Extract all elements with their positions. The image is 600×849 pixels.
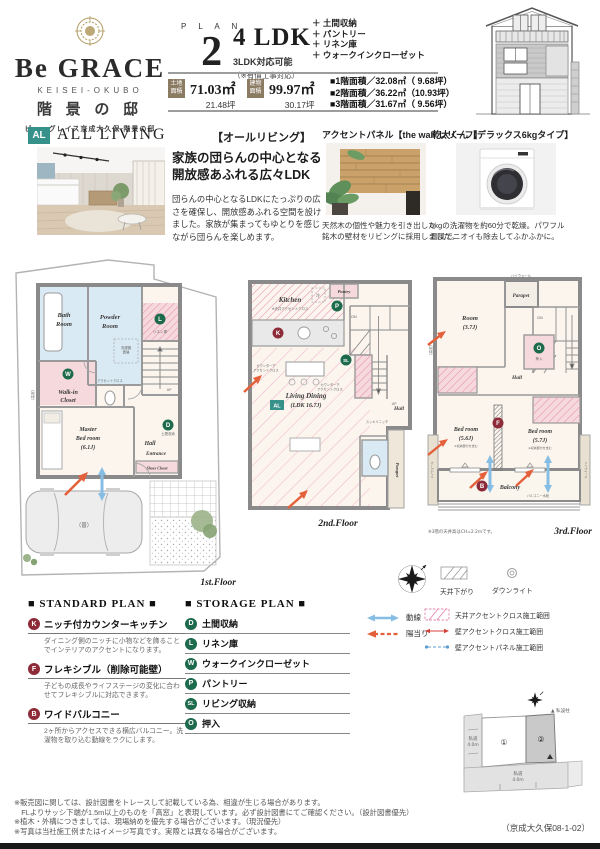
closet-room-hatch	[438, 367, 477, 393]
floor3-note: ※3階の天井高はCH=2.2mです。	[428, 528, 495, 535]
storage-plan-title: ■ STORAGE PLAN ■	[185, 598, 350, 610]
all-living-headline: 家族の団らんの中心となる 開放感あふれる広々LDK	[172, 150, 322, 184]
dryer-photo	[456, 143, 556, 215]
al-badge: AL	[28, 127, 50, 144]
ldk-sub: 3LDK対応可能	[233, 55, 311, 68]
road-bottom-label-2: 4.0m	[512, 777, 523, 783]
room-label-2: (3.7J)	[463, 324, 478, 331]
counter-note-a1: カウンター下	[256, 363, 276, 368]
standard-item-desc: ダイニング側のニッチに小物などを飾ることでインテリアのアクセントになります。	[44, 637, 186, 655]
linen-legend-badge: L	[185, 638, 197, 650]
accent-note: アクセントクロス	[97, 378, 122, 383]
sofa	[290, 438, 320, 451]
hall-label-2f: Hall	[393, 406, 405, 412]
road-left-label-1: 私道	[469, 735, 478, 742]
disclaimer-line3: ※植木・外構につきましては、現場納めを優先する場合がございます。（現況優先）	[14, 817, 444, 827]
sl-badge-letter: SL	[343, 358, 349, 363]
standard-plan-item: Kニッチ付カウンターキッチン ダイニング側のニッチに小物などを飾ることでインテリ…	[28, 617, 186, 655]
legend-ceiling-drop: 天井下がり	[440, 566, 474, 596]
elevation-drawing	[468, 2, 596, 122]
powder-label-2: Room	[101, 323, 118, 330]
island-counter	[286, 362, 324, 376]
kitchen-note: ※天井アクセントクロス	[272, 306, 309, 311]
sun-arrow-icon	[366, 629, 400, 639]
brand-sub: KEISEI-OKUBO	[10, 86, 170, 95]
washer-label-2: 置場	[123, 350, 130, 355]
flexible-wall	[494, 405, 502, 470]
storage-item: Pパントリー	[185, 674, 350, 694]
doma-legend-badge: D	[185, 618, 197, 630]
up-label-1f: UP	[167, 388, 173, 392]
building-tsubo: 30.17坪	[269, 99, 315, 111]
road-stub	[568, 761, 582, 787]
living-room-photo	[37, 147, 165, 235]
legend-downlight: ダウンライト	[492, 566, 533, 595]
footer-code: （京成大久保08-1-02）	[450, 822, 590, 834]
wic-badge-letter: W	[65, 372, 71, 378]
disclaimer-line2: FLよりサッシ下端が1.5m以上のものを「高窓」と表現しています。必ず設計図書に…	[14, 808, 444, 818]
counter-note-b2: アクセントクロス	[317, 387, 342, 392]
counter-note-a2: アクセントクロス	[253, 368, 278, 373]
storage-item-label: 押入	[202, 717, 220, 730]
floor3-label: 3rd.Floor	[553, 527, 592, 537]
floor-plan-1: L リネン庫 W D 土間収納 Bath Room Powder Room 洗濯…	[10, 255, 238, 590]
living-storage-hatch	[355, 355, 372, 398]
floor-area-1: ■1階面積／32.08㎡（ 9.68坪）	[330, 76, 455, 88]
washer-label-1: 洗濯機	[121, 345, 132, 350]
dryer-card-title: 乾太くん【デラックス6kgタイプ】	[432, 128, 573, 141]
ldk-type: 4 LDK	[233, 24, 311, 52]
building-area: 建物 面積 99.97㎡ 30.17坪	[247, 79, 315, 111]
wic-legend-badge: W	[185, 658, 197, 670]
bldg-badge-line2: 面積	[249, 89, 261, 97]
building-area-badge: 建物 面積	[247, 79, 264, 98]
oshiire-badge-letter: O	[537, 346, 542, 352]
balcony-tap-label: バルコニー水栓	[527, 493, 550, 498]
floor1-label: 1st.Floor	[200, 578, 236, 588]
legend-sun: 陽当り	[366, 628, 429, 639]
bed1-label-1: Bed room	[453, 427, 479, 433]
bath-label-2: Room	[55, 321, 72, 328]
headline-line2: 開放感あふれる広々LDK	[172, 167, 322, 184]
ceiling-accent-icon	[424, 608, 450, 621]
land-area-badge: 土地 面積	[168, 79, 185, 98]
dryer-caption-line1: 6kgの洗濯物を約60分で乾燥。パワフル	[430, 221, 565, 232]
pantry-label: Pantry	[338, 289, 352, 294]
standard-item-title: ワイドバルコニー	[44, 707, 120, 721]
toilet-2f	[370, 455, 380, 469]
storage-item-label: 土間収納	[202, 617, 238, 630]
ceiling-drop-label: 天井下がり	[440, 586, 474, 596]
closet-bed2-hatch	[533, 397, 580, 423]
master-label-3: (6.1J)	[81, 444, 96, 451]
parapet-label-2f: Parapet	[395, 463, 400, 479]
standard-item-desc: 子どもの成長やライフステージの変化に合わせてフレキシブルに対応できます。	[44, 682, 186, 700]
compass-icon	[394, 560, 430, 596]
flexible-badge-letter: F	[496, 421, 500, 427]
hall-label-3f: Hall	[511, 375, 523, 381]
feature-item: ＋ リネン庫	[312, 39, 425, 50]
all-living-body: 団らんの中心となるLDKにたっぷりの広さを確保し、開放感あふれる空間を設けました…	[172, 193, 322, 243]
master-label-2: Bed room	[75, 436, 101, 442]
flexible-legend-badge: F	[28, 663, 40, 675]
dn-label-3f: DN	[537, 316, 543, 320]
wic-label-1: Walk-in	[58, 390, 78, 396]
wic-label-2: Closet	[60, 398, 76, 404]
private-pole-label: ▲ 私設柱	[551, 707, 570, 714]
legend-ceiling-accent: 天井アクセントクロス施工範囲	[424, 608, 550, 621]
parapet-label-3f: Parapet	[513, 293, 530, 299]
feature-item: ＋ 土間収納	[312, 18, 425, 29]
standard-plan-item: Fフレキシブル（削除可能壁） 子どもの成長やライフステージの変化に合わせてフレキ…	[28, 662, 186, 700]
legend-wall-cloth: 壁アクセントクロス施工範囲	[424, 626, 543, 636]
kitchen-badge-letter: K	[276, 331, 281, 337]
lot2-label: ②	[537, 735, 544, 744]
wall-panel-label: 壁アクセントパネル施工範囲	[455, 642, 543, 652]
storage-item: O押入	[185, 714, 350, 734]
bath-label-1: Bath	[56, 312, 70, 319]
dryer-caption-line2: 温風でニオイも除去してふかふかに。	[430, 232, 565, 243]
linen-label: リネン庫	[153, 329, 168, 334]
room-label-1: Room	[461, 315, 478, 322]
oshiire-legend-badge: O	[185, 718, 197, 730]
balcony-rails	[438, 504, 580, 510]
all-living-title-jp: 【オールリビング】	[212, 129, 311, 145]
sink	[298, 327, 310, 339]
fridge-label: 冷	[316, 292, 320, 298]
bed1-note: ※収納部分を含む	[454, 443, 478, 448]
kitchen-label: Kitchen	[278, 296, 302, 304]
downlight-label: ダウンライト	[492, 585, 533, 595]
standard-plan-title: ■ STANDARD PLAN ■	[28, 598, 186, 610]
disclaimer: ※販売図に関しては、設計図書をトレースして記載している為、相違が生じる場合があり…	[14, 798, 444, 836]
land-area: 土地 面積 71.03㎡ 21.48坪	[168, 79, 236, 111]
shoes-closet-label: Shoes Closet	[146, 466, 168, 471]
land-badge-line2: 面積	[170, 89, 182, 97]
wall-cloth-icon	[424, 627, 450, 635]
feature-item: ＋ ウォークインクローゼット	[312, 50, 425, 61]
living-label-1: Living Dining	[285, 392, 327, 400]
storage-item-label: リビング収納	[202, 697, 256, 710]
kitchen-legend-badge: K	[28, 618, 40, 630]
highwall-left-label: ハイウォール	[430, 461, 434, 478]
storage-item: D土間収納	[185, 614, 350, 634]
land-tsubo: 21.48坪	[190, 99, 236, 111]
feature-list: ＋ 土間収納 ＋ パントリー ＋ リネン庫 ＋ ウォークインクローゼット	[312, 18, 425, 60]
flyer-page: Be GRACE KEISEI-OKUBO 階 景 の 邸 ビー・グレイス京成大…	[0, 0, 600, 849]
site-plan: ▲ 私設柱 ① ② 私道 4.0m 私道 4.0m	[438, 682, 596, 810]
standard-item-title: フレキシブル（削除可能壁）	[44, 662, 168, 676]
master-label-1: Master	[78, 427, 97, 433]
counter-note-b1: カウンター下	[320, 382, 340, 387]
floor-plan-3: O 押入 F B ハイウォール Parapet Room (3.7J) DN H…	[420, 255, 600, 547]
storage-plan-section: ■ STORAGE PLAN ■ D土間収納 Lリネン庫 Wウォークインクローゼ…	[185, 598, 350, 734]
living-label-2: (LDK 16.7J)	[291, 402, 322, 409]
linen-badge-letter: L	[158, 317, 162, 323]
building-sqm: 99.97㎡	[269, 79, 315, 99]
hall-label-1f: Hall	[143, 441, 155, 447]
oshiire-label: 押入	[535, 356, 543, 361]
floor-area-2: ■2階面積／36.22㎡（10.93坪）	[330, 88, 455, 100]
disclaimer-line1: ※販売図に関しては、設計図書をトレースして記載している為、相違が生じる場合があり…	[14, 798, 444, 808]
pillow	[44, 413, 60, 423]
bldg-badge-line1: 建物	[249, 81, 261, 89]
entrance-label: Entrance	[145, 451, 167, 457]
storage-item: SLリビング収納	[185, 694, 350, 714]
standard-item-title: ニッチ付カウンターキッチン	[44, 617, 168, 631]
flow-arrow-icon	[366, 613, 400, 623]
disclaimer-line4: ※写真は当社施工例またはイメージ写真です。実際とは異なる場合がございます。	[14, 827, 444, 837]
takamado-label-1f: 〈高窓〉	[30, 388, 35, 402]
brand-name: Be GRACE	[10, 53, 170, 84]
divider	[168, 72, 438, 74]
lot1-label: ①	[500, 738, 507, 747]
parking-car	[26, 488, 142, 556]
car-label: （普）	[76, 521, 93, 529]
wall-cloth-label: 壁アクセントクロス施工範囲	[455, 626, 543, 636]
headline-line1: 家族の団らんの中心となる	[172, 150, 322, 167]
bed2-label-2: (5.7J)	[533, 437, 548, 444]
all-living-header: AL ALL LIVING	[28, 126, 167, 144]
storage-item-label: リネン庫	[202, 637, 238, 650]
legend-flow: 動線	[366, 612, 421, 623]
accent-panel-photo	[326, 143, 426, 215]
highwall-top-label: ハイウォール	[511, 273, 532, 278]
doma-label: 土間収納	[161, 431, 175, 436]
bed1-label-2: (5.6J)	[459, 435, 474, 442]
floor-area-list: ■1階面積／32.08㎡（ 9.68坪） ■2階面積／36.22㎡（10.93坪…	[330, 76, 455, 111]
logo-ornament-icon	[73, 14, 107, 48]
powder-label-1: Powder	[100, 314, 121, 321]
land-badge-line1: 土地	[170, 81, 182, 89]
bottom-bar	[0, 843, 600, 849]
ceiling-drop-icon	[440, 566, 468, 580]
road-bottom-label-1: 私道	[514, 770, 523, 777]
bed2-label-1: Bed room	[527, 429, 553, 435]
storage-item-label: パントリー	[202, 677, 247, 690]
floor-area-3: ■3階面積／31.67㎡（ 9.56坪）	[330, 99, 455, 111]
logo-block: Be GRACE KEISEI-OKUBO 階 景 の 邸 ビー・グレイス京成大…	[10, 14, 170, 134]
balcony-legend-badge: B	[28, 708, 40, 720]
downlight-icon	[506, 566, 518, 580]
bed2-note: ※収納部分を含む	[528, 445, 552, 450]
pantry-legend-badge: P	[185, 678, 197, 690]
storage-item: Lリネン庫	[185, 634, 350, 654]
wall-panel-icon	[424, 643, 450, 651]
dryer-card-caption: 6kgの洗濯物を約60分で乾燥。パワフル 温風でニオイも除去してふかふかに。	[430, 221, 565, 242]
niche-note: スッキリニッチ	[366, 419, 388, 424]
road-left-label-2: 4.0m	[467, 742, 478, 748]
storage-item: Wウォークインクローゼット	[185, 654, 350, 674]
pantry-badge-letter: P	[335, 304, 339, 310]
storage-item-label: ウォークインクローゼット	[202, 657, 310, 670]
balcony-badge-letter: B	[480, 484, 485, 490]
all-living-title: ALL LIVING	[57, 126, 167, 144]
sl-legend-badge: SL	[185, 698, 197, 710]
feature-item: ＋ パントリー	[312, 29, 425, 40]
doma-badge-letter: D	[166, 423, 171, 429]
al-plan-badge-letter: AL	[273, 404, 281, 410]
legend-wall-panel: 壁アクセントパネル施工範囲	[424, 642, 543, 652]
ceiling-accent-label: 天井アクセントクロス施工範囲	[455, 610, 550, 620]
standard-plan-item: Bワイドバルコニー 2ヶ所からアクセスできる横広バルコニー。洗濯物を取り込む動線…	[28, 707, 186, 745]
balcony-label: Balcony	[499, 485, 521, 491]
floor2-label: 2nd.Floor	[317, 519, 358, 529]
highwall-right-label: ハイウォール	[584, 462, 588, 479]
floor-plan-2: K P SL AL Kitchen ※天井アクセントクロス 冷 Pantry D…	[242, 258, 418, 550]
land-sqm: 71.03㎡	[190, 79, 236, 99]
standard-plan-section: ■ STANDARD PLAN ■ Kニッチ付カウンターキッチン ダイニング側の…	[28, 598, 186, 745]
estate-name: 階 景 の 邸	[10, 98, 170, 119]
takamado-label-3f: 〈高窓〉	[428, 343, 433, 357]
flow-label: 動線	[406, 612, 421, 623]
toilet-1f	[105, 391, 115, 405]
dn-label-2f: DN	[351, 315, 357, 319]
standard-item-desc: 2ヶ所からアクセスできる横広バルコニー。洗濯物を取り込む動線をラクにします。	[44, 727, 186, 745]
